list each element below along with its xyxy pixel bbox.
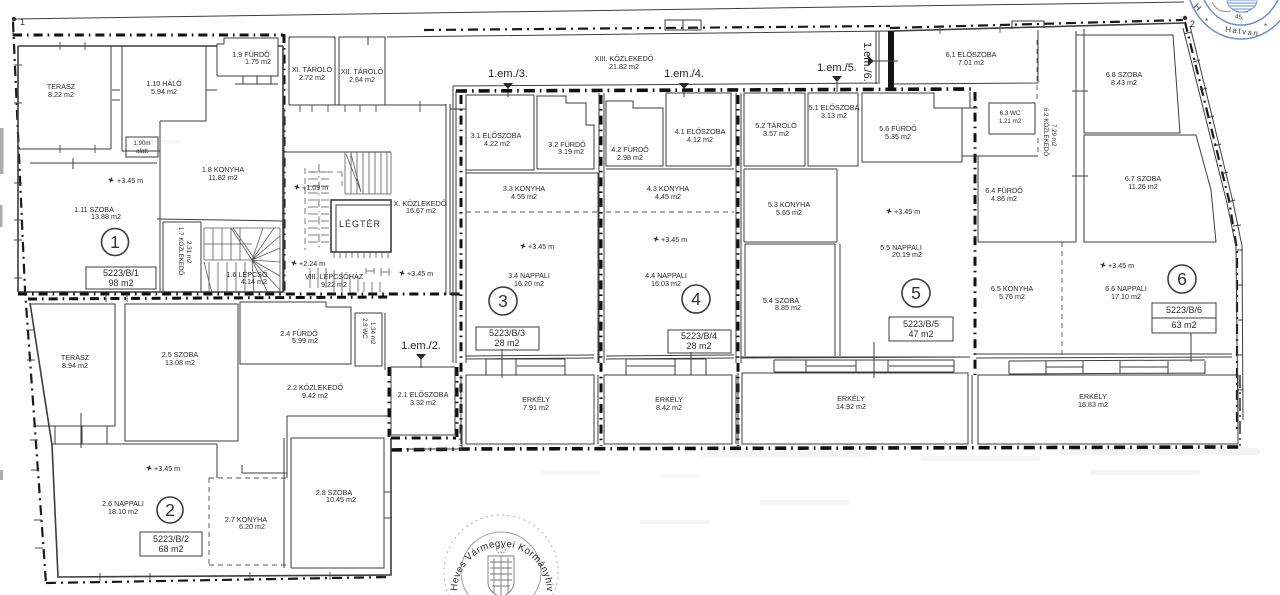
svg-text:5: 5 <box>911 283 921 303</box>
svg-text:+3.45 m: +3.45 m <box>117 176 143 185</box>
svg-text:LÉGTÉR: LÉGTÉR <box>339 219 381 229</box>
svg-text:5223/B/1: 5223/B/1 <box>103 268 139 278</box>
svg-text:4.55 m2: 4.55 m2 <box>511 192 537 201</box>
svg-text:45.: 45. <box>1234 13 1244 21</box>
svg-text:10.45 m2: 10.45 m2 <box>326 495 356 504</box>
svg-text:7.01 m2: 7.01 m2 <box>958 58 984 67</box>
svg-text:*: * <box>1264 22 1267 31</box>
svg-text:13.08 m2: 13.08 m2 <box>165 358 195 367</box>
svg-text:6: 6 <box>1177 269 1187 289</box>
svg-text:3.57 m2: 3.57 m2 <box>763 129 789 138</box>
svg-text:11.26 m2: 11.26 m2 <box>1128 182 1157 191</box>
svg-text:1.21 m2: 1.21 m2 <box>999 118 1022 125</box>
svg-text:3.13 m2: 3.13 m2 <box>821 111 847 120</box>
svg-text:4.22 m2: 4.22 m2 <box>484 139 510 148</box>
svg-text:+2.24 m: +2.24 m <box>299 259 325 268</box>
svg-text:5223/B/5: 5223/B/5 <box>903 319 939 329</box>
svg-text:2.98 m2: 2.98 m2 <box>617 153 643 162</box>
svg-text:98 m2: 98 m2 <box>108 278 133 288</box>
svg-text:28 m2: 28 m2 <box>494 338 519 348</box>
svg-text:1.75 m2: 1.75 m2 <box>245 57 271 66</box>
svg-text:+3.45 m: +3.45 m <box>407 269 433 278</box>
svg-text:9.22 m2: 9.22 m2 <box>321 280 347 289</box>
svg-text:1: 1 <box>20 17 25 27</box>
svg-text:*: * <box>1205 17 1208 26</box>
svg-text:4.86 m2: 4.86 m2 <box>991 194 1017 203</box>
svg-text:H: H <box>1192 1 1204 13</box>
svg-text:11.82 m2: 11.82 m2 <box>208 173 237 182</box>
svg-text:2.3 WC: 2.3 WC <box>361 318 368 339</box>
svg-text:13.88 m2: 13.88 m2 <box>91 212 121 221</box>
svg-text:7.29 m2: 7.29 m2 <box>1050 124 1057 147</box>
svg-text:20.19 m2: 20.19 m2 <box>892 250 922 259</box>
svg-text:+3.45 m: +3.45 m <box>154 464 180 473</box>
svg-text:1.em./4.: 1.em./4. <box>664 68 704 80</box>
svg-text:17.10 m2: 17.10 m2 <box>1111 292 1141 301</box>
svg-text:4.14 m2: 4.14 m2 <box>241 277 267 286</box>
svg-text:16.67 m2: 16.67 m2 <box>406 206 436 215</box>
svg-text:alatt: alatt <box>136 148 148 155</box>
svg-text:2.72 m2: 2.72 m2 <box>299 73 325 82</box>
svg-text:1.em./3.: 1.em./3. <box>488 68 528 80</box>
svg-text:Hatvan: Hatvan <box>1225 25 1260 39</box>
svg-text:8.85 m2: 8.85 m2 <box>775 303 801 312</box>
svg-text:1.34 m2: 1.34 m2 <box>369 322 376 345</box>
svg-text:5.76 m2: 5.76 m2 <box>999 292 1025 301</box>
svg-text:2.31 m2: 2.31 m2 <box>185 241 192 264</box>
svg-text:14.92 m2: 14.92 m2 <box>836 402 866 411</box>
svg-text:8.94 m2: 8.94 m2 <box>62 361 88 370</box>
svg-text:+3.45 m: +3.45 m <box>1108 261 1134 270</box>
svg-text:3.32 m2: 3.32 m2 <box>410 398 436 407</box>
svg-text:1.7 KÖZLEKEDŐ: 1.7 KÖZLEKEDŐ <box>177 227 184 275</box>
svg-text:1.em./2.: 1.em./2. <box>401 340 441 352</box>
svg-text:16.03 m2: 16.03 m2 <box>651 279 681 288</box>
svg-text:4: 4 <box>691 289 701 309</box>
svg-text:+3.45 m: +3.45 m <box>528 242 554 251</box>
svg-text:1.90m: 1.90m <box>133 140 150 147</box>
svg-text:4.45 m2: 4.45 m2 <box>655 192 681 201</box>
svg-text:Heves Vármegyei Kormányhivatal: Heves Vármegyei Kormányhivatal <box>0 0 555 592</box>
svg-text:2.64 m2: 2.64 m2 <box>349 75 375 84</box>
svg-text:7.91 m2: 7.91 m2 <box>523 403 549 412</box>
svg-text:5223/B/3: 5223/B/3 <box>489 328 525 338</box>
svg-text:8.22 m2: 8.22 m2 <box>48 90 74 99</box>
svg-text:28 m2: 28 m2 <box>686 341 711 351</box>
svg-text:5.35 m2: 5.35 m2 <box>885 132 911 141</box>
svg-text:2: 2 <box>165 500 175 520</box>
svg-text:5223/B/2: 5223/B/2 <box>153 534 189 544</box>
svg-text:6.20 m2: 6.20 m2 <box>239 522 265 531</box>
svg-text:1: 1 <box>110 232 120 252</box>
svg-text:18.10 m2: 18.10 m2 <box>108 507 138 516</box>
svg-text:+1.09 m: +1.09 m <box>302 183 328 192</box>
svg-text:4.12 m2: 4.12 m2 <box>687 135 713 144</box>
svg-text:6.3 WC: 6.3 WC <box>1000 110 1021 117</box>
svg-text:5.65 m2: 5.65 m2 <box>776 208 802 217</box>
svg-text:3: 3 <box>498 291 508 311</box>
svg-text:16.20 m2: 16.20 m2 <box>514 279 544 288</box>
svg-text:5.94 m2: 5.94 m2 <box>151 87 177 96</box>
svg-text:+3.45 m: +3.45 m <box>894 207 920 216</box>
svg-text:63 m2: 63 m2 <box>1171 320 1196 330</box>
svg-text:5223/B/6: 5223/B/6 <box>1166 305 1202 315</box>
svg-text:8.42 m2: 8.42 m2 <box>656 403 682 412</box>
svg-text:9.42 m2: 9.42 m2 <box>302 391 328 400</box>
svg-text:1.em./5.: 1.em./5. <box>817 62 857 74</box>
svg-text:8.43 m2: 8.43 m2 <box>1111 78 1137 87</box>
svg-text:47 m2: 47 m2 <box>908 329 933 339</box>
svg-text:5223/B/4: 5223/B/4 <box>681 331 717 341</box>
svg-text:3.19 m2: 3.19 m2 <box>558 147 584 156</box>
svg-text:16.83 m2: 16.83 m2 <box>1078 400 1108 409</box>
svg-text:5.99 m2: 5.99 m2 <box>292 336 318 345</box>
svg-text:+3.45 m: +3.45 m <box>661 235 687 244</box>
svg-text:68 m2: 68 m2 <box>158 544 183 554</box>
svg-text:21.82 m2: 21.82 m2 <box>609 62 639 71</box>
svg-text:6.2 KÖZLEKEDŐ: 6.2 KÖZLEKEDŐ <box>1042 108 1049 156</box>
